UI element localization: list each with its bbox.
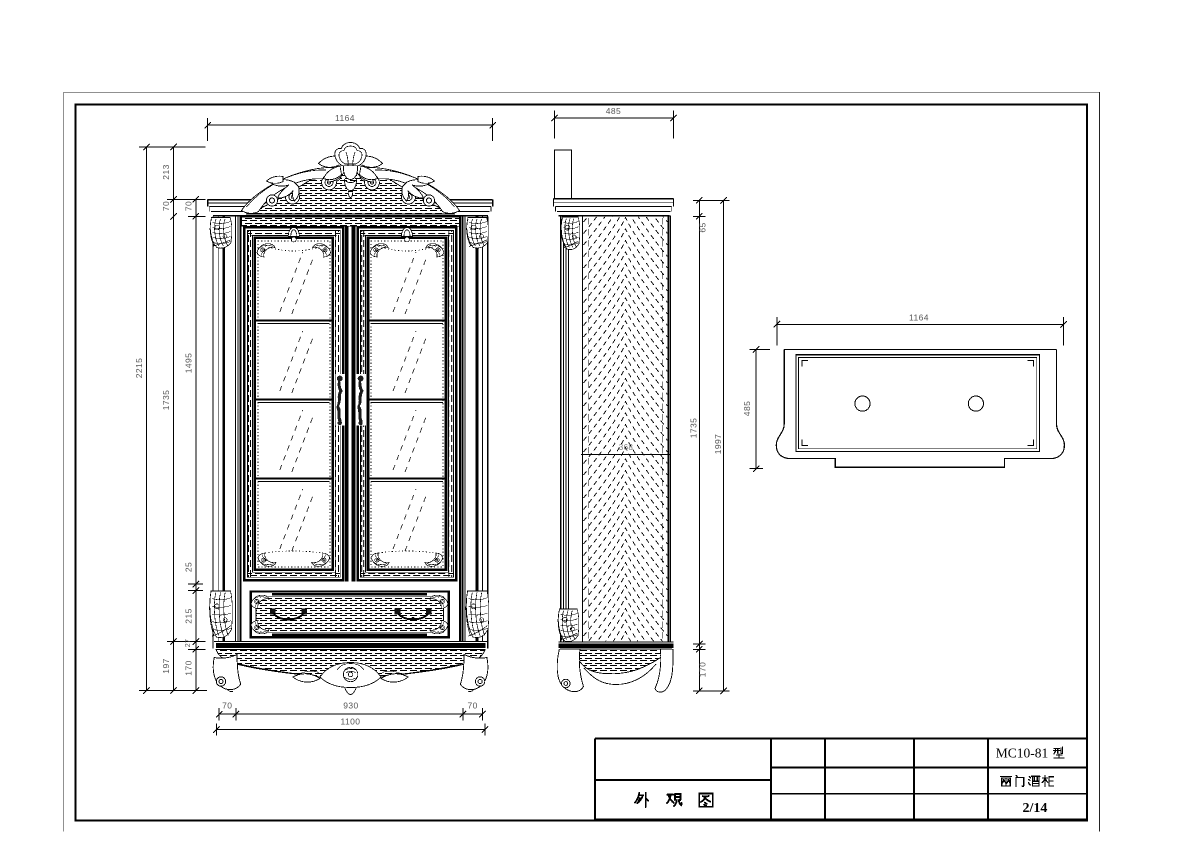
svg-text:1495: 1495 [183,353,193,374]
svg-text:485: 485 [606,106,621,116]
svg-text:930: 930 [343,701,358,711]
svg-text:215: 215 [183,608,193,623]
svg-text:1735: 1735 [689,418,699,439]
svg-text:170: 170 [698,662,708,677]
svg-text:1100: 1100 [341,717,361,727]
svg-text:70: 70 [222,701,232,711]
svg-text:170: 170 [183,660,193,675]
svg-text:485: 485 [742,401,752,416]
svg-text:1164: 1164 [335,113,355,123]
svg-text:1997: 1997 [713,434,723,455]
svg-text:2215: 2215 [134,358,144,379]
svg-text:70: 70 [161,201,171,211]
svg-text:368: 368 [619,443,634,452]
svg-text:1735: 1735 [161,390,171,411]
svg-text:27: 27 [185,639,192,648]
svg-text:65: 65 [698,222,708,232]
svg-text:2/14: 2/14 [1023,801,1048,816]
svg-text:25: 25 [183,562,193,572]
svg-text:70: 70 [183,201,193,211]
svg-text:70: 70 [467,701,477,711]
svg-text:MC10-81: MC10-81 [996,746,1049,761]
svg-text:1164: 1164 [909,312,929,322]
svg-text:213: 213 [161,164,171,179]
svg-text:197: 197 [161,658,171,673]
